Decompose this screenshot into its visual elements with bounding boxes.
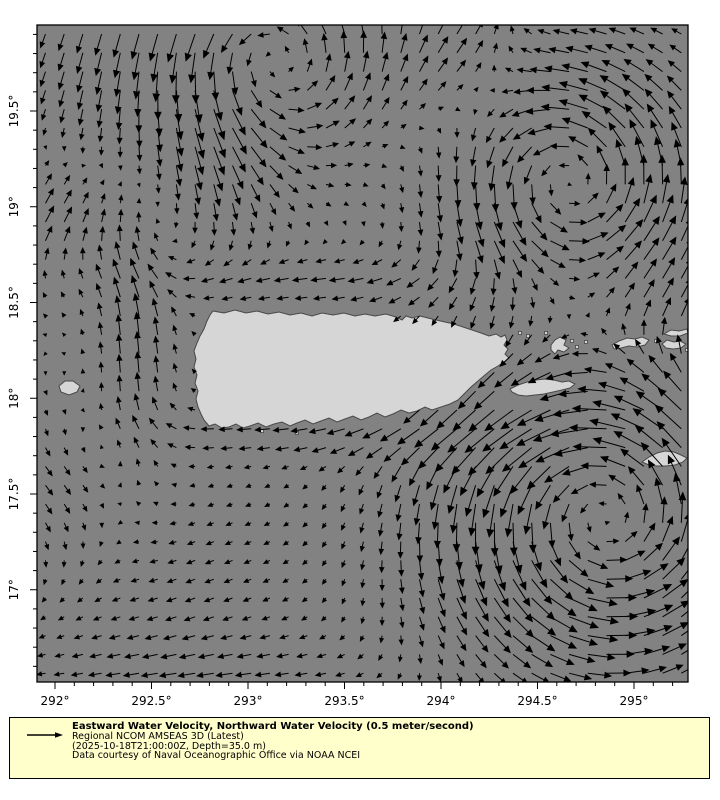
y-tick-label: 19° [7,196,21,217]
y-tick-label: 18.5° [7,286,21,319]
x-tick-label: 293° [234,694,263,708]
x-tick-label: 294° [427,694,456,708]
x-tick-label: 293.5° [324,694,364,708]
y-tick-label: 19.5° [7,95,21,128]
y-tick-label: 18° [7,388,21,409]
y-tick-label: 17° [7,579,21,600]
islet [576,346,579,349]
islet [585,341,588,344]
legend-credit-line: Data courtesy of Naval Oceanographic Off… [72,751,474,761]
legend-box: Eastward Water Velocity, Northward Water… [9,717,710,779]
x-tick-label: 292.5° [131,694,171,708]
x-tick-label: 292° [41,694,70,708]
x-tick-label: 295° [620,694,649,708]
islet [545,332,548,335]
reference-arrow-icon [25,730,65,740]
x-tick-label: 294.5° [517,694,557,708]
islet [571,340,574,343]
islet [519,332,522,335]
figure: 292°292.5°293°293.5°294°294.5°295°19.5°1… [0,0,720,800]
y-tick-label: 17.5° [7,478,21,511]
velocity-map: 292°292.5°293°293.5°294°294.5°295°19.5°1… [0,0,720,712]
islet [527,335,530,338]
